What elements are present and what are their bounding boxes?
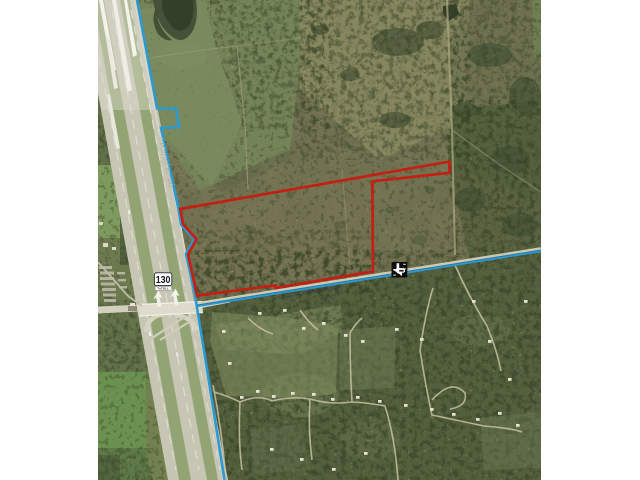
svg-text:TxTOLL: TxTOLL	[157, 287, 169, 291]
svg-text:130: 130	[156, 275, 171, 286]
